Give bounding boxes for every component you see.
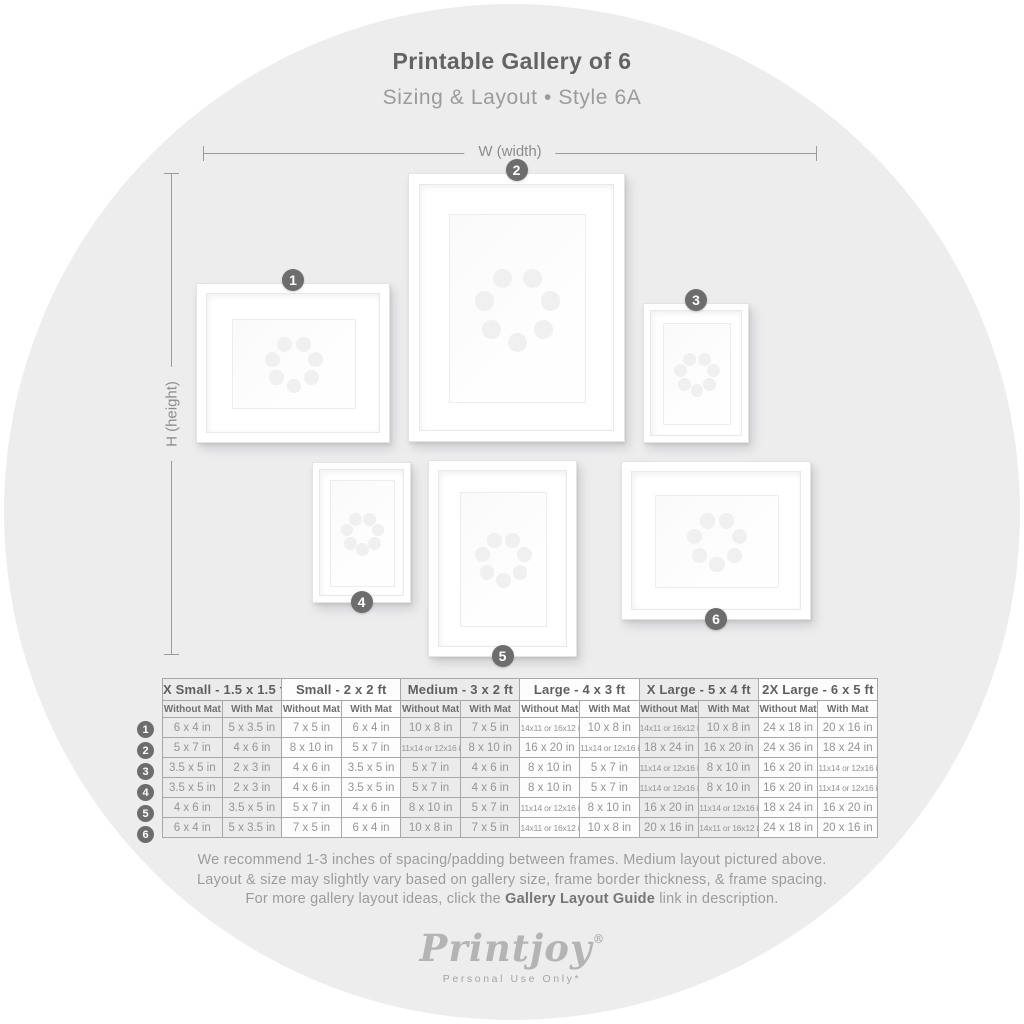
- size-cell: 11x14 or 12x16 in: [699, 798, 759, 818]
- frame-mat: [631, 471, 801, 610]
- placeholder-dot: [534, 320, 553, 339]
- size-cell: 14x11 or 16x12 in: [520, 718, 580, 738]
- placeholder-dot: [732, 529, 747, 544]
- frame-print: [449, 214, 586, 403]
- size-cell: 4 x 6 in: [282, 758, 342, 778]
- frame-mat: [438, 470, 567, 647]
- size-cell: 24 x 18 in: [758, 818, 818, 838]
- mat-subheader: With Mat: [580, 701, 640, 718]
- size-cell: 24 x 18 in: [758, 718, 818, 738]
- size-cell: 2 x 3 in: [222, 758, 282, 778]
- frame-print: [330, 480, 395, 587]
- size-cell: 11x14 or 12x16 in: [639, 758, 699, 778]
- placeholder-dot: [709, 557, 724, 572]
- size-cell: 16 x 20 in: [639, 798, 699, 818]
- size-cell: 16 x 20 in: [758, 758, 818, 778]
- size-cell: 8 x 10 in: [282, 738, 342, 758]
- size-cell: 11x14 or 12x16 in: [639, 778, 699, 798]
- size-cell: 7 x 5 in: [282, 718, 342, 738]
- size-cell: 2 x 3 in: [222, 778, 282, 798]
- mat-subheader: Without Mat: [401, 701, 461, 718]
- size-cell: 4 x 6 in: [460, 778, 520, 798]
- size-cell: 20 x 16 in: [818, 818, 878, 838]
- width-dimension-label: W (width): [464, 143, 555, 160]
- frame-badge-3: 3: [685, 289, 707, 311]
- placeholder-dot: [363, 513, 376, 526]
- size-cell: 11x14 or 12x16 in: [818, 758, 878, 778]
- placeholder-dot: [698, 353, 711, 366]
- height-dimension-line: H (height): [171, 173, 172, 655]
- size-cell: 11x14 or 12x16 in: [580, 738, 640, 758]
- placeholder-dot: [296, 337, 311, 352]
- footer-line-2: Layout & size may slightly vary based on…: [0, 871, 1024, 891]
- size-cell: 4 x 6 in: [282, 778, 342, 798]
- placeholder-dot: [487, 533, 502, 548]
- placeholder-dot: [707, 364, 720, 377]
- size-cell: 11x14 or 12x16 in: [520, 798, 580, 818]
- size-cell: 8 x 10 in: [460, 738, 520, 758]
- placeholder-dot: [683, 353, 696, 366]
- placeholder-dot: [517, 547, 532, 562]
- frame-badge-6: 6: [705, 608, 727, 630]
- mat-subheader: Without Mat: [758, 701, 818, 718]
- placeholder-dot: [692, 548, 707, 563]
- row-badge-6: 6: [137, 826, 154, 843]
- placeholder-dot: [700, 513, 715, 528]
- placeholder-dot: [308, 352, 323, 367]
- placeholder-dot: [505, 533, 520, 548]
- placeholder-dot: [304, 370, 319, 385]
- placeholder-dot: [719, 513, 734, 528]
- size-cell: 6 x 4 in: [341, 818, 401, 838]
- mat-subheader: With Mat: [222, 701, 282, 718]
- frame-badge-5: 5: [492, 645, 514, 667]
- size-cell: 8 x 10 in: [520, 758, 580, 778]
- width-dimension-line: W (width): [203, 153, 817, 154]
- placeholder-dot: [482, 320, 501, 339]
- size-cell: 11x14 or 12x16 in: [818, 778, 878, 798]
- size-cell: 10 x 8 in: [580, 718, 640, 738]
- mat-subheader: Without Mat: [163, 701, 223, 718]
- size-cell: 4 x 6 in: [163, 798, 223, 818]
- size-cell: 10 x 8 in: [580, 818, 640, 838]
- frame-badge-1: 1: [282, 269, 304, 291]
- page-title: Printable Gallery of 6: [0, 48, 1024, 75]
- brand-block: Printjoy® Personal Use Only*: [0, 926, 1024, 985]
- size-group-header-2: Small - 2 x 2 ft: [282, 679, 401, 701]
- size-cell: 14x11 or 16x12 in: [639, 718, 699, 738]
- frame-mat: [650, 310, 742, 436]
- size-cell: 4 x 6 in: [460, 758, 520, 778]
- placeholder-dot: [493, 269, 512, 288]
- placeholder-dot: [475, 547, 490, 562]
- size-cell: 16 x 20 in: [818, 798, 878, 818]
- placeholder-dot: [513, 565, 528, 580]
- mat-subheader: Without Mat: [520, 701, 580, 718]
- placeholder-dot: [265, 352, 280, 367]
- size-cell: 8 x 10 in: [401, 798, 461, 818]
- size-cell: 10 x 8 in: [699, 718, 759, 738]
- size-cell: 3.5 x 5 in: [163, 758, 223, 778]
- row-badge-1: 1: [137, 721, 154, 738]
- sizes-table-wrap: X Small - 1.5 x 1.5 ftSmall - 2 x 2 ftMe…: [162, 678, 878, 838]
- placeholder-dot: [678, 378, 691, 391]
- row-badge-2: 2: [137, 742, 154, 759]
- size-cell: 5 x 7 in: [401, 778, 461, 798]
- mat-subheader: Without Mat: [282, 701, 342, 718]
- size-cell: 14x11 or 16x12 in: [699, 818, 759, 838]
- footer-line-3-suffix: link in description.: [655, 891, 778, 907]
- gallery-frame-3: 3: [643, 303, 749, 443]
- size-cell: 7 x 5 in: [282, 818, 342, 838]
- height-dimension-label: H (height): [164, 367, 181, 461]
- frame-print: [663, 323, 731, 425]
- gallery-frame-1: 1: [196, 283, 390, 443]
- placeholder-dot: [727, 548, 742, 563]
- gallery-frame-5: 5: [428, 460, 577, 657]
- footer-line-3: For more gallery layout ideas, click the…: [0, 890, 1024, 910]
- gallery-frame-4: 4: [312, 462, 411, 603]
- size-cell: 5 x 7 in: [163, 738, 223, 758]
- brand-tagline: Personal Use Only*: [0, 973, 1024, 985]
- placeholder-dot: [523, 269, 542, 288]
- size-cell: 11x14 or 12x16 in: [401, 738, 461, 758]
- footer-line-3-prefix: For more gallery layout ideas, click the: [246, 891, 506, 907]
- size-cell: 18 x 24 in: [818, 738, 878, 758]
- placeholder-dot: [356, 543, 369, 556]
- size-cell: 8 x 10 in: [699, 758, 759, 778]
- size-cell: 20 x 16 in: [818, 718, 878, 738]
- size-cell: 18 x 24 in: [639, 738, 699, 758]
- size-cell: 5 x 7 in: [460, 798, 520, 818]
- printjoy-logo: Printjoy®: [0, 926, 1024, 970]
- frame-print: [232, 319, 356, 409]
- size-cell: 6 x 4 in: [163, 818, 223, 838]
- size-cell: 3.5 x 5 in: [341, 778, 401, 798]
- mat-subheader: With Mat: [341, 701, 401, 718]
- frame-mat: [319, 469, 404, 596]
- size-cell: 16 x 20 in: [520, 738, 580, 758]
- placeholder-dot: [372, 524, 385, 537]
- infographic-canvas: Printable Gallery of 6 Sizing & Layout •…: [0, 0, 1024, 1024]
- size-cell: 3.5 x 5 in: [222, 798, 282, 818]
- gallery-frame-6: 6: [621, 461, 811, 620]
- size-cell: 5 x 7 in: [341, 738, 401, 758]
- size-cell: 5 x 7 in: [282, 798, 342, 818]
- size-cell: 5 x 7 in: [580, 758, 640, 778]
- size-cell: 16 x 20 in: [699, 738, 759, 758]
- size-group-header-5: X Large - 5 x 4 ft: [639, 679, 758, 701]
- size-cell: 6 x 4 in: [163, 718, 223, 738]
- size-group-header-3: Medium - 3 x 2 ft: [401, 679, 520, 701]
- row-badge-4: 4: [137, 784, 154, 801]
- size-group-header-1: X Small - 1.5 x 1.5 ft: [163, 679, 282, 701]
- size-cell: 4 x 6 in: [341, 798, 401, 818]
- size-cell: 5 x 3.5 in: [222, 718, 282, 738]
- placeholder-dot: [480, 565, 495, 580]
- frame-print: [460, 492, 547, 627]
- gallery-frame-2: 2: [408, 173, 625, 442]
- size-cell: 8 x 10 in: [699, 778, 759, 798]
- size-cell: 18 x 24 in: [758, 798, 818, 818]
- sizes-table: X Small - 1.5 x 1.5 ftSmall - 2 x 2 ftMe…: [162, 678, 878, 838]
- placeholder-dot: [508, 333, 527, 352]
- page-subtitle: Sizing & Layout • Style 6A: [0, 86, 1024, 110]
- gallery-layout-guide-link-text: Gallery Layout Guide: [505, 891, 655, 907]
- mat-subheader: With Mat: [460, 701, 520, 718]
- placeholder-dot: [277, 337, 292, 352]
- size-cell: 6 x 4 in: [341, 718, 401, 738]
- mat-subheader: With Mat: [699, 701, 759, 718]
- mat-subheader: With Mat: [818, 701, 878, 718]
- frame-print: [655, 495, 779, 588]
- placeholder-dot: [687, 529, 702, 544]
- placeholder-dot: [475, 291, 494, 310]
- placeholder-dot: [674, 364, 687, 377]
- size-cell: 8 x 10 in: [580, 798, 640, 818]
- placeholder-dot: [691, 384, 704, 397]
- frame-badge-4: 4: [351, 591, 373, 613]
- size-cell: 5 x 7 in: [580, 778, 640, 798]
- size-cell: 10 x 8 in: [401, 818, 461, 838]
- placeholder-dot: [703, 378, 716, 391]
- size-cell: 8 x 10 in: [520, 778, 580, 798]
- frame-mat: [419, 184, 614, 431]
- placeholder-dot: [496, 573, 511, 588]
- placeholder-dot: [368, 537, 381, 550]
- size-cell: 5 x 7 in: [401, 758, 461, 778]
- frame-badge-2: 2: [506, 159, 528, 181]
- placeholder-dot: [344, 537, 357, 550]
- placeholder-dot: [269, 370, 284, 385]
- size-cell: 5 x 3.5 in: [222, 818, 282, 838]
- size-cell: 10 x 8 in: [401, 718, 461, 738]
- size-group-header-6: 2X Large - 6 x 5 ft: [758, 679, 877, 701]
- size-cell: 4 x 6 in: [222, 738, 282, 758]
- registered-mark: ®: [592, 932, 604, 946]
- size-cell: 3.5 x 5 in: [341, 758, 401, 778]
- placeholder-dot: [349, 513, 362, 526]
- placeholder-dot: [287, 379, 302, 394]
- row-badge-3: 3: [137, 763, 154, 780]
- placeholder-dot: [341, 524, 354, 537]
- mat-subheader: Without Mat: [639, 701, 699, 718]
- size-cell: 20 x 16 in: [639, 818, 699, 838]
- printjoy-logo-text: Printjoy: [420, 926, 593, 970]
- size-cell: 7 x 5 in: [460, 818, 520, 838]
- size-cell: 14x11 or 16x12 in: [520, 818, 580, 838]
- footer-line-1: We recommend 1-3 inches of spacing/paddi…: [0, 851, 1024, 871]
- size-cell: 7 x 5 in: [460, 718, 520, 738]
- size-group-header-4: Large - 4 x 3 ft: [520, 679, 639, 701]
- placeholder-dot: [541, 291, 560, 310]
- size-cell: 3.5 x 5 in: [163, 778, 223, 798]
- frame-mat: [206, 293, 380, 433]
- row-badge-5: 5: [137, 805, 154, 822]
- size-cell: 24 x 36 in: [758, 738, 818, 758]
- footer-note: We recommend 1-3 inches of spacing/paddi…: [0, 851, 1024, 910]
- size-cell: 16 x 20 in: [758, 778, 818, 798]
